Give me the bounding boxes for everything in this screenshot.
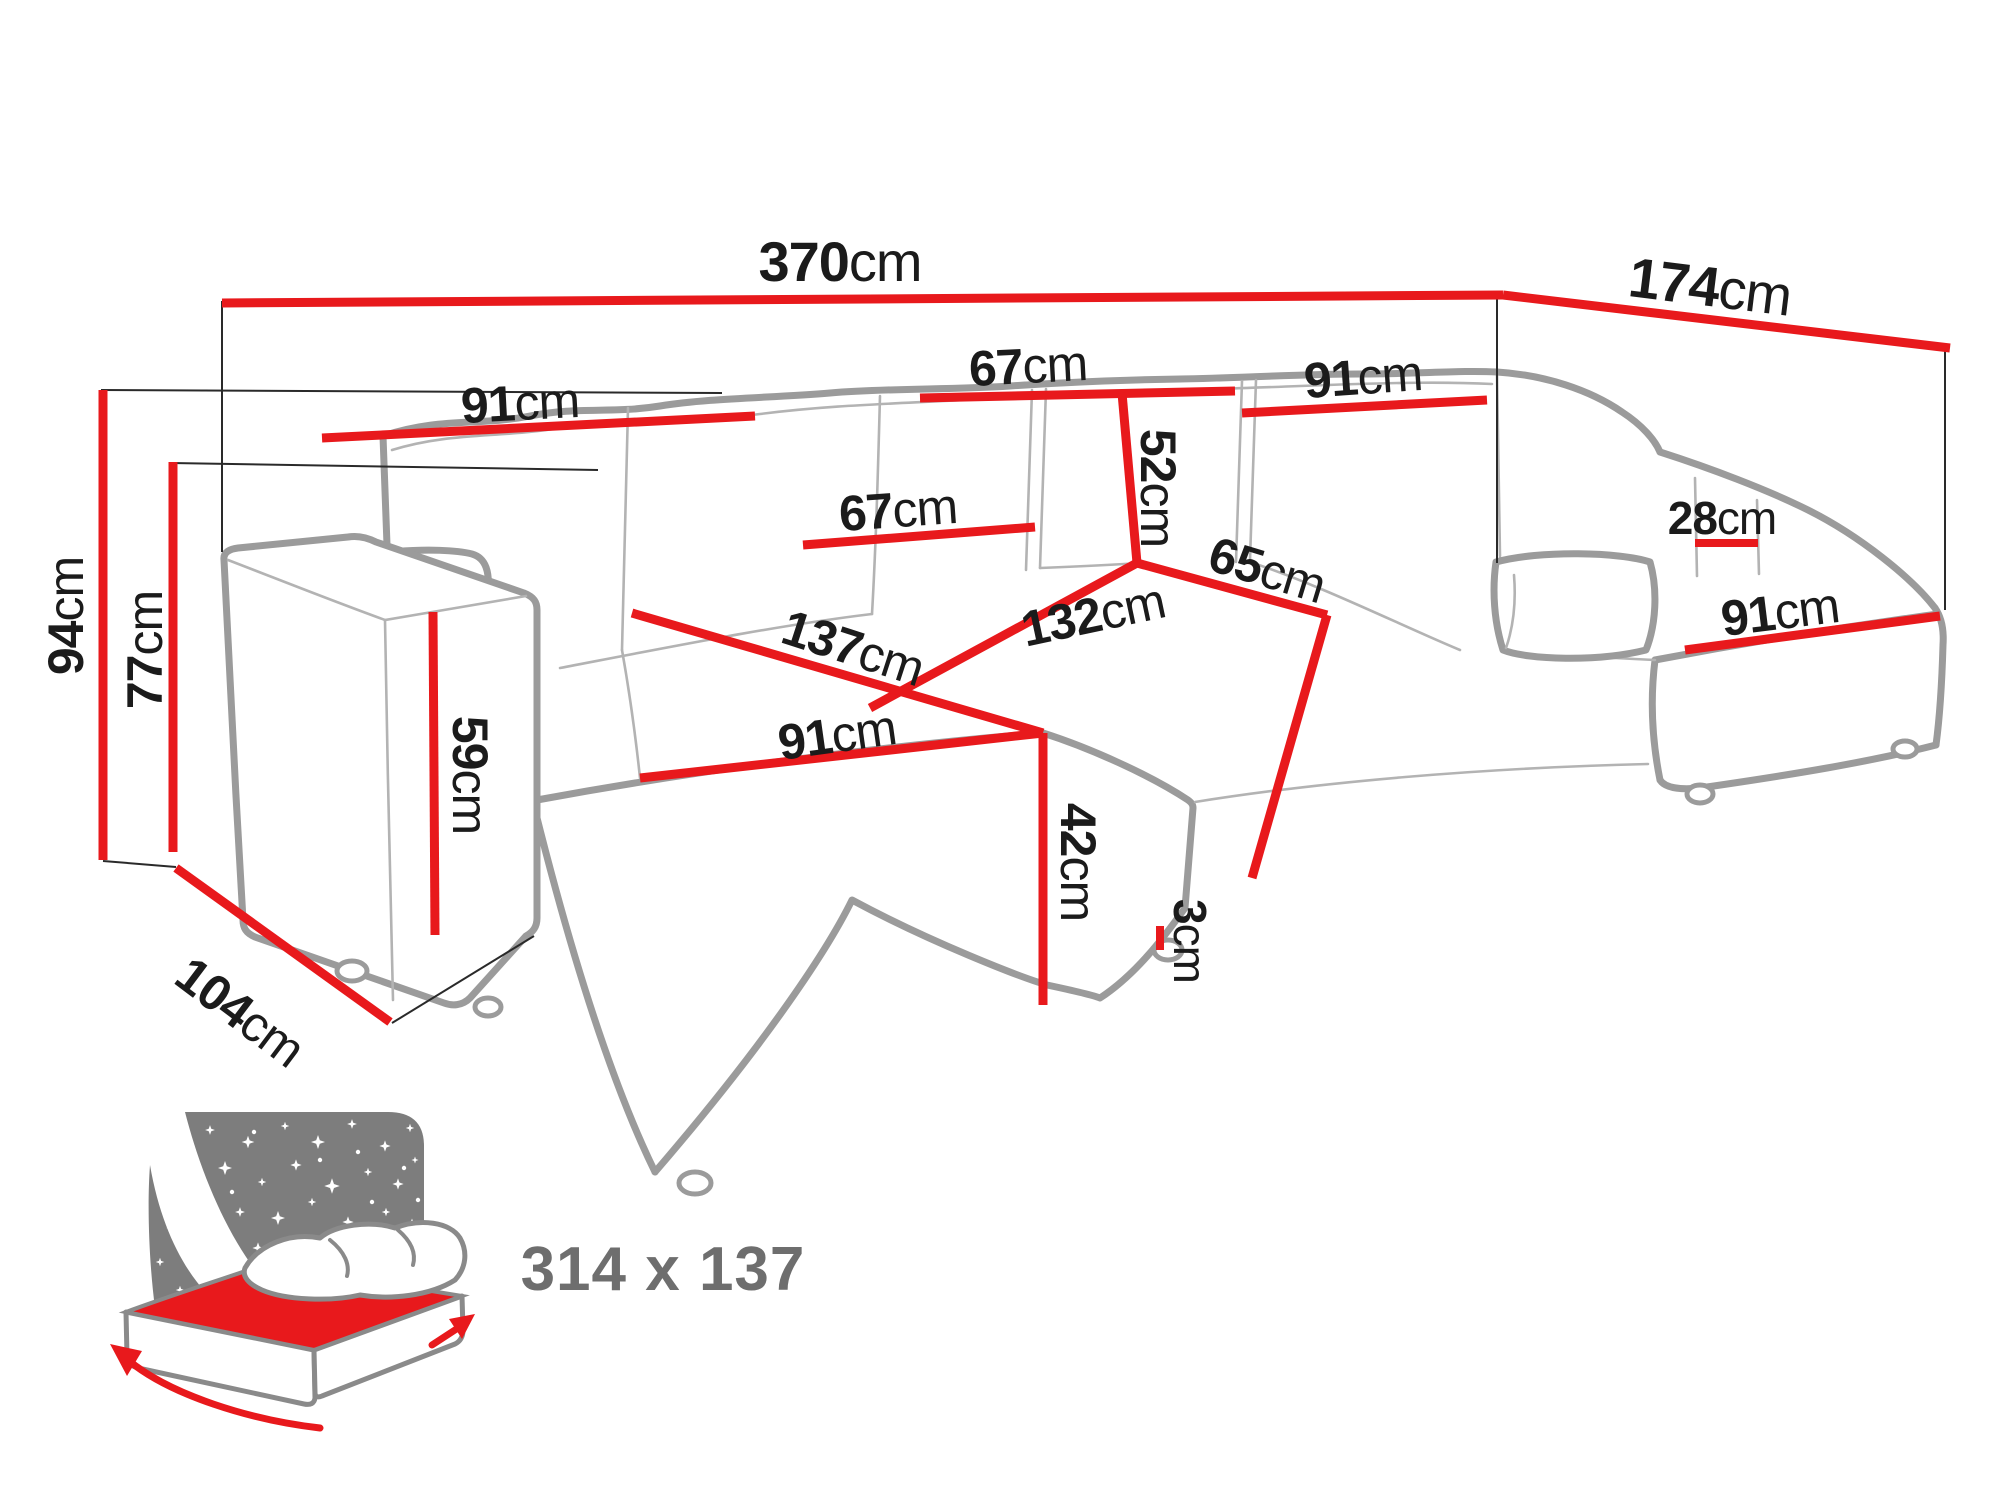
extension-line-depth-upper xyxy=(103,861,176,867)
sofa-leg xyxy=(337,961,367,981)
back-seam-1 xyxy=(622,408,628,650)
sofa-leg xyxy=(475,998,501,1016)
sofa-leg xyxy=(1893,741,1917,757)
dim-label-104: 104cm xyxy=(165,946,315,1078)
dim-label-3: 3cm xyxy=(1164,899,1216,983)
dim-label-52: 52cm xyxy=(1130,429,1186,547)
back-seam-3b xyxy=(1040,389,1046,568)
dim-label-91-back-left: 91cm xyxy=(459,372,580,434)
right-chaise-right-edge xyxy=(1935,608,1943,745)
sofa-leg xyxy=(1687,785,1713,803)
right-return-rail xyxy=(1497,372,1660,452)
dim-line-65-corner xyxy=(1252,615,1327,878)
sofa-bed-night-icon xyxy=(110,1112,475,1428)
dim-label-91-right-seat: 91cm xyxy=(1718,577,1842,647)
dim-label-67-cushion: 67cm xyxy=(837,478,959,542)
sofa-dimensions-diagram: 370cm 174cm 91cm 67cm 91cm 52cm 28cm 67c… xyxy=(0,0,2000,1500)
dim-label-137: 137cm xyxy=(775,599,930,697)
chaise-left-edge xyxy=(535,810,655,1172)
dim-label-91-chaise: 91cm xyxy=(775,699,900,771)
right-pillow xyxy=(1494,554,1655,659)
dim-label-28: 28cm xyxy=(1668,492,1777,544)
sleeping-area-label: 314 x 137 xyxy=(521,1235,806,1304)
dim-line-59 xyxy=(433,612,435,935)
dim-label-42: 42cm xyxy=(1050,803,1106,921)
back-seam-3a xyxy=(1026,390,1032,570)
dim-line-67-top xyxy=(920,391,1235,398)
sofa-leg xyxy=(679,1172,711,1194)
back-seam-4b xyxy=(1250,380,1256,560)
extension-line-height-top xyxy=(101,390,722,393)
dim-label-59: 59cm xyxy=(442,716,498,834)
dim-label-67-top: 67cm xyxy=(967,335,1088,397)
sofa-back-left-edge xyxy=(383,436,387,545)
right-chaise-left-edge xyxy=(1652,660,1660,780)
floor-gap-line xyxy=(1195,764,1648,802)
dim-label-370: 370cm xyxy=(758,230,921,293)
dim-label-91-back-right: 91cm xyxy=(1302,345,1424,409)
diagram-canvas: 370cm 174cm 91cm 67cm 91cm 52cm 28cm 67c… xyxy=(0,0,2000,1500)
dim-label-77: 77cm xyxy=(117,591,173,709)
sofa-front-bottom-edge xyxy=(655,900,1185,1172)
dim-line-370 xyxy=(222,295,1503,303)
dim-label-94: 94cm xyxy=(38,557,94,675)
chaise-seat-left-edge xyxy=(622,650,640,778)
